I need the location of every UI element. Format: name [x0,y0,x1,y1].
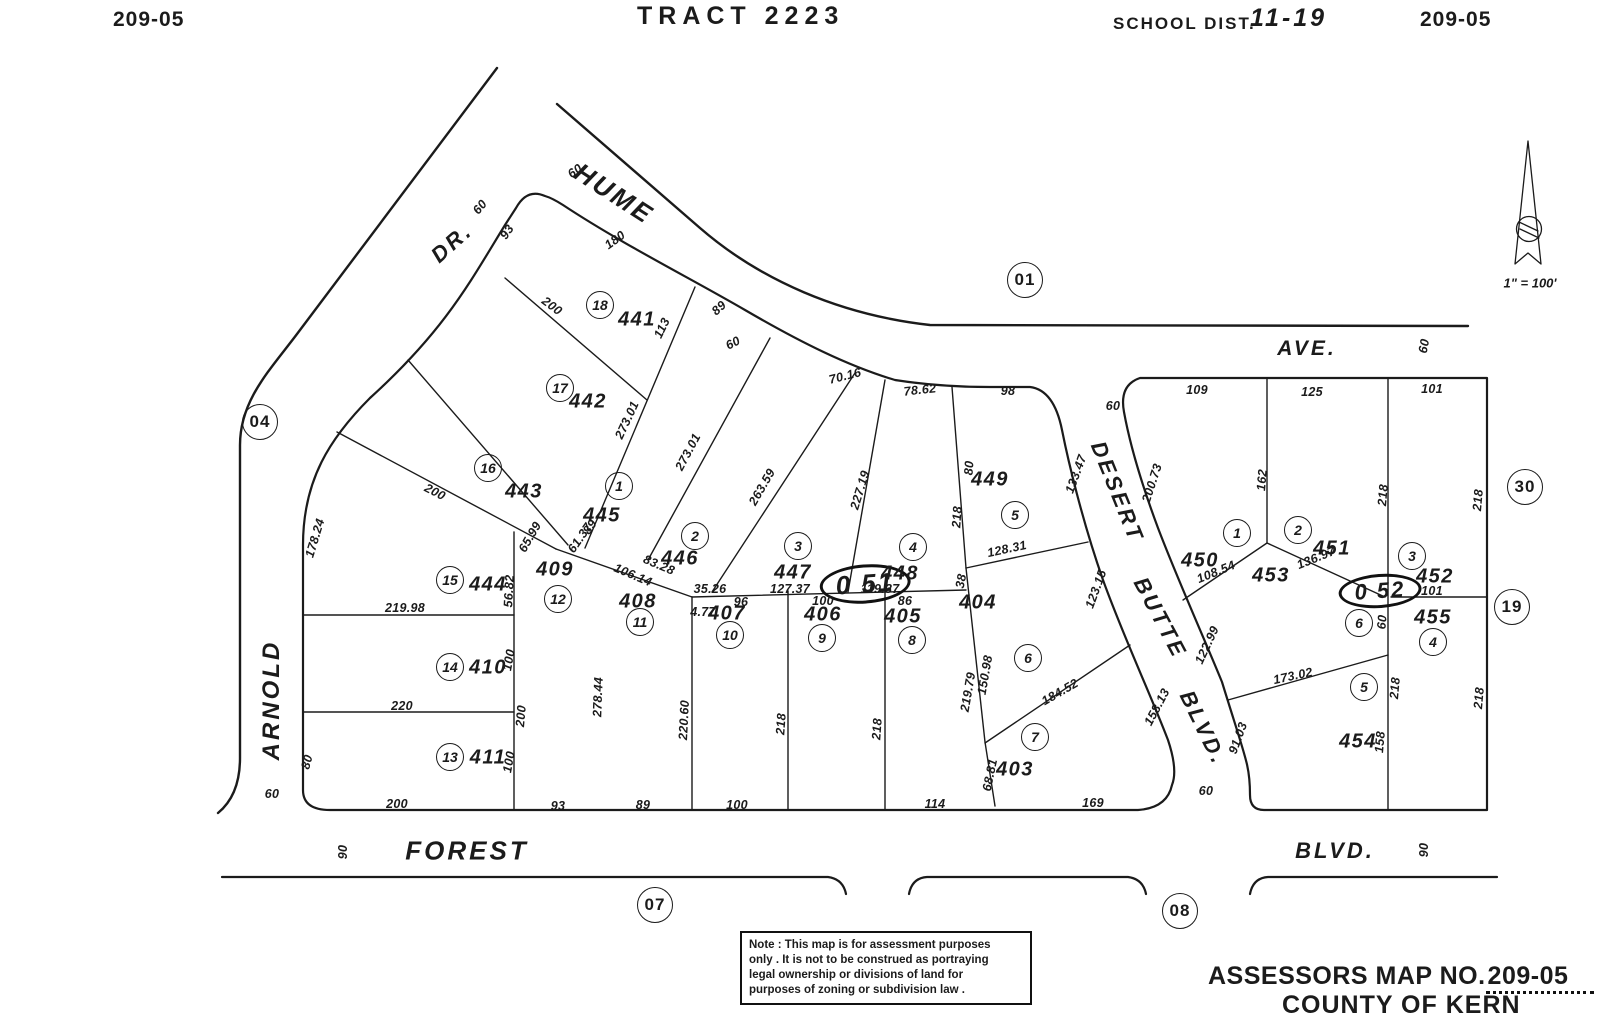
dim-200: 200 [386,797,408,811]
lot-1: 1 [1223,519,1251,547]
dim-127-37: 127.37 [770,582,810,596]
map-label-layer: HUMEDR.AVE.ARNOLDDESERTBUTTEBLVD.FORESTB… [0,0,1600,1018]
note-line: Note : This map is for assessment purpos… [749,938,1023,953]
lot-3: 3 [784,532,812,560]
road-ave-: AVE. [1277,337,1336,361]
dim-119-37: 119.37 [860,582,899,596]
dim-109: 109 [1186,383,1208,397]
dim-173-02: 173.02 [1272,665,1314,687]
dim-60: 60 [470,197,490,217]
dim-60: 60 [1416,338,1432,355]
lot-8: 8 [898,626,926,654]
dim-78-62: 78.62 [903,381,937,398]
dim-98: 98 [1001,384,1016,398]
lot-6: 6 [1014,644,1042,672]
lot-16: 16 [474,454,502,482]
dim-60: 60 [1106,399,1121,413]
road-forest: FOREST [405,836,528,867]
dim-93: 93 [497,222,517,242]
dim-60: 60 [1374,614,1389,630]
ref-04: 04 [242,404,278,440]
dim-178-24: 178.24 [302,517,327,559]
dim-89: 89 [709,298,729,318]
dim-263-59: 263.59 [746,466,778,508]
parcel-455: 455 [1414,607,1452,630]
dim-200: 200 [422,481,448,503]
assessors-map-label: ASSESSORS MAP NO. [1208,962,1486,990]
dim-90: 90 [336,845,350,860]
dim-128-31: 128.31 [986,538,1028,560]
dim-273-01: 273.01 [612,399,642,441]
note-line: purposes of zoning or subdivision law . [749,983,1023,998]
dim-220: 220 [391,699,413,713]
dim-93: 93 [551,799,566,813]
parcel-442: 442 [569,391,607,414]
parcel-443: 443 [505,481,543,504]
dim-65-99: 65.99 [516,519,545,554]
dim-91-03: 91.03 [1226,720,1250,756]
assessors-map-title: ASSESSORS MAP NO.209-05 [1208,962,1594,991]
ref-08: 08 [1162,893,1198,929]
dim-101: 101 [1421,584,1443,598]
dim-122-99: 122.99 [1192,624,1222,666]
ref-07: 07 [637,887,673,923]
assessor-map-page: 209-05 TRACT 2223 SCHOOL DIST. 11-19 209… [0,0,1600,1018]
parcel-409: 409 [536,559,574,582]
note-line: legal ownership or divisions of land for [749,968,1023,983]
dim-38: 38 [953,573,969,590]
dim-200-73: 200.73 [1139,462,1165,504]
parcel-408: 408 [619,591,657,614]
parcel-449: 449 [971,469,1009,492]
dim-80: 80 [962,460,977,475]
dim-162: 162 [1254,469,1270,492]
lot-5: 5 [1001,501,1029,529]
road-desert: DESERT [1085,438,1149,547]
dim-273-01: 273.01 [672,431,703,473]
parcel-405: 405 [884,606,922,629]
dim-60: 60 [723,333,742,352]
dim-35-26: 35.26 [694,582,727,596]
dim-86: 86 [898,594,913,608]
dim-200: 200 [539,294,565,318]
dim-218: 218 [1375,484,1391,507]
dim-218: 218 [1471,687,1487,710]
dim-96: 96 [734,595,749,609]
lot-6: 6 [1345,609,1373,637]
assessment-note-box: Note : This map is for assessment purpos… [740,931,1032,1005]
dim-219-98: 219.98 [385,601,425,615]
lot-2: 2 [681,522,709,550]
lot-4: 4 [1419,628,1447,656]
lot-7: 7 [1021,723,1049,751]
dim-133-47: 133.47 [1063,453,1090,495]
dim-100: 100 [726,798,748,812]
lot-4: 4 [899,533,927,561]
dim-56-82: 56.82 [501,574,517,607]
dim-100: 100 [500,750,518,774]
road-blvd-: BLVD. [1174,686,1232,769]
parcel-403: 403 [996,759,1034,782]
ref-30: 30 [1507,469,1543,505]
ref-19: 19 [1494,589,1530,625]
lot-2: 2 [1284,516,1312,544]
dim-114: 114 [925,797,946,811]
oval-0-52: 0 52 [1338,571,1423,611]
dim-100: 100 [500,648,518,672]
county-title: COUNTY OF KERN [1282,991,1521,1018]
parcel-404: 404 [959,592,997,615]
road-dr-: DR. [426,218,478,269]
dim-60: 60 [1199,784,1214,798]
road-arnold: ARNOLD [258,640,286,761]
dim-278-44: 278.44 [590,677,605,718]
lot-1: 1 [605,472,633,500]
dim-180: 180 [602,228,628,252]
note-line: only . It is not to be construed as port… [749,953,1023,968]
dim-123-15: 123.15 [1083,568,1110,610]
dim-200: 200 [513,705,529,728]
lot-18: 18 [586,291,614,319]
dim-89: 89 [636,798,651,812]
dim-184-52: 184.52 [1039,676,1081,708]
ref-01: 01 [1007,262,1043,298]
lot-5: 5 [1350,673,1378,701]
lot-14: 14 [436,653,464,681]
dim-4-77: 4.77 [690,605,716,619]
scale-1-100-: 1" = 100' [1504,276,1557,291]
dim-218: 218 [1470,489,1486,512]
dim-158-13: 158.13 [1141,686,1172,728]
dim-125: 125 [1301,385,1323,399]
assessors-map-number: 209-05 [1486,962,1595,994]
dim-218: 218 [869,718,884,741]
dim-90: 90 [1417,843,1431,858]
dim-218: 218 [773,713,788,736]
lot-15: 15 [436,566,464,594]
dim-70-16: 70.16 [827,365,862,387]
dim-80: 80 [298,753,315,771]
lot-12: 12 [544,585,572,613]
road-blvd-: BLVD. [1295,838,1375,864]
road-butte: BUTTE [1128,573,1192,663]
dim-100: 100 [812,594,834,608]
dim-220-60: 220.60 [676,700,692,741]
dim-101: 101 [1421,382,1443,396]
parcel-441: 441 [618,309,656,332]
dim-60: 60 [265,787,280,801]
dim-169: 169 [1082,796,1104,810]
dim-218: 218 [949,506,964,529]
lot-13: 13 [436,743,464,771]
dim-158: 158 [1372,731,1388,754]
lot-9: 9 [808,624,836,652]
parcel-453: 453 [1252,565,1290,588]
dim-227-19: 227.19 [847,469,872,511]
dim-218: 218 [1387,677,1403,700]
